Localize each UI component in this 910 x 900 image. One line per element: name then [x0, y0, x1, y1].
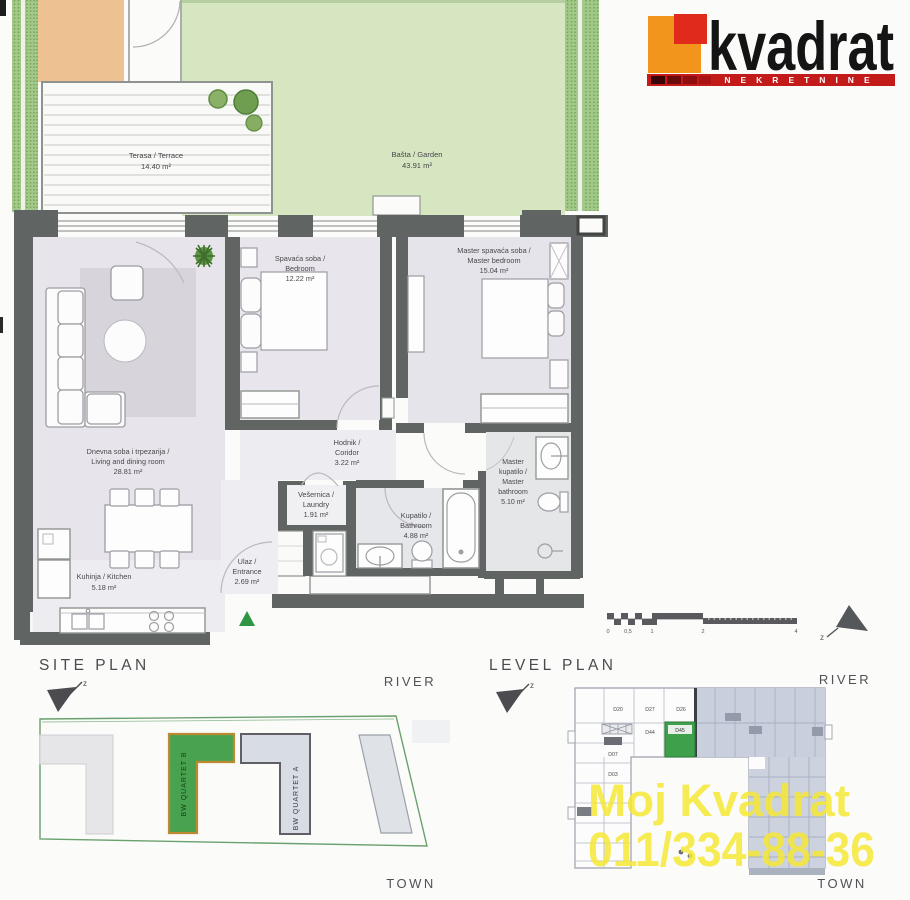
svg-text:Coridor: Coridor	[335, 448, 359, 457]
svg-text:RIVER: RIVER	[819, 672, 871, 687]
svg-text:Master: Master	[502, 479, 524, 486]
svg-text:D20: D20	[613, 707, 623, 713]
svg-text:Dnevna soba i trpezarija /: Dnevna soba i trpezarija /	[87, 447, 171, 456]
svg-text:z: z	[83, 679, 87, 688]
svg-text:5.10 m²: 5.10 m²	[501, 499, 525, 506]
svg-text:2.69 m²: 2.69 m²	[235, 577, 260, 586]
svg-text:bathroom: bathroom	[498, 489, 528, 496]
svg-text:Kuhinja / Kitchen: Kuhinja / Kitchen	[77, 572, 132, 581]
svg-text:D44: D44	[645, 730, 655, 736]
svg-text:15.04 m²: 15.04 m²	[480, 266, 509, 275]
svg-text:kupatilo /: kupatilo /	[499, 469, 527, 476]
svg-text:Master bedroom: Master bedroom	[467, 256, 520, 265]
svg-text:Hodnik /: Hodnik /	[334, 438, 362, 447]
svg-text:3.22 m²: 3.22 m²	[335, 458, 360, 467]
svg-text:Bedroom: Bedroom	[285, 264, 315, 273]
svg-text:Vešernica /: Vešernica /	[298, 490, 335, 499]
svg-text:43.91 m²: 43.91 m²	[402, 161, 432, 170]
svg-text:Moj Kvadrat: Moj Kvadrat	[588, 775, 850, 826]
svg-text:Living and dining room: Living and dining room	[91, 457, 164, 466]
svg-text:1: 1	[650, 629, 653, 635]
svg-text:4.88 m²: 4.88 m²	[404, 531, 429, 540]
svg-text:NEKRETNINE: NEKRETNINE	[724, 75, 879, 85]
svg-text:BW QUARTET B: BW QUARTET B	[181, 751, 188, 816]
svg-text:14.40 m²: 14.40 m²	[141, 162, 171, 171]
svg-text:RIVER: RIVER	[384, 674, 436, 689]
svg-text:0: 0	[606, 629, 609, 635]
svg-text:z: z	[530, 681, 534, 690]
svg-text:Laundry: Laundry	[303, 500, 330, 509]
svg-text:Ulaz /: Ulaz /	[238, 557, 258, 566]
svg-text:LEVEL PLAN: LEVEL PLAN	[489, 657, 616, 674]
svg-text:TOWN: TOWN	[386, 876, 435, 891]
svg-text:BW QUARTET A: BW QUARTET A	[293, 766, 300, 831]
svg-text:Terasa / Terrace: Terasa / Terrace	[129, 151, 183, 160]
svg-text:D27: D27	[645, 707, 655, 713]
svg-text:z: z	[820, 633, 824, 642]
svg-text:1.91 m²: 1.91 m²	[304, 510, 329, 519]
svg-text:Master spavaća soba /: Master spavaća soba /	[457, 246, 531, 255]
svg-text:2: 2	[701, 629, 704, 635]
svg-text:TOWN: TOWN	[817, 876, 866, 891]
svg-text:Spavaća soba /: Spavaća soba /	[275, 254, 326, 263]
svg-text:011/334-88-36: 011/334-88-36	[588, 824, 875, 877]
svg-text:Entrance: Entrance	[232, 567, 261, 576]
svg-text:kvadrat: kvadrat	[708, 8, 894, 85]
svg-text:5.18 m²: 5.18 m²	[92, 583, 117, 592]
svg-text:4: 4	[794, 629, 797, 635]
svg-text:D45: D45	[675, 728, 685, 734]
svg-text:D26: D26	[676, 707, 686, 713]
svg-text:Master: Master	[502, 459, 524, 466]
svg-text:0,5: 0,5	[624, 629, 632, 635]
svg-text:Kupatilo /: Kupatilo /	[401, 511, 432, 520]
svg-text:D07: D07	[608, 752, 618, 758]
svg-text:12.22 m²: 12.22 m²	[286, 274, 315, 283]
svg-text:Bašta / Garden: Bašta / Garden	[391, 150, 442, 159]
svg-text:Bathroom: Bathroom	[400, 521, 432, 530]
svg-text:28.81 m²: 28.81 m²	[114, 467, 143, 476]
svg-text:SITE PLAN: SITE PLAN	[39, 657, 150, 674]
